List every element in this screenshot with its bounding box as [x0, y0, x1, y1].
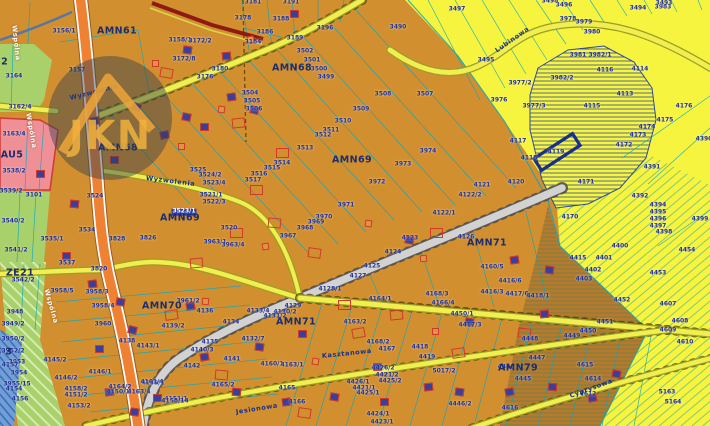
building-icon — [70, 200, 80, 209]
building-outline-icon — [351, 327, 366, 339]
outbuilding-icon — [432, 328, 439, 335]
building-icon — [129, 407, 139, 416]
building-icon — [509, 255, 519, 264]
building-icon — [200, 123, 209, 131]
building-icon — [181, 112, 191, 122]
building-outline-icon — [230, 228, 243, 238]
building-outline-icon — [430, 228, 443, 238]
building-icon — [131, 102, 142, 113]
building-icon — [540, 310, 550, 319]
building-icon — [290, 10, 299, 18]
building-icon — [115, 297, 125, 306]
building-icon — [404, 235, 414, 245]
building-icon — [87, 279, 97, 288]
outbuilding-icon — [311, 357, 319, 365]
outbuilding-icon — [178, 143, 185, 150]
building-icon — [504, 387, 514, 396]
building-outline-icon — [307, 247, 321, 259]
building-icon — [281, 397, 291, 406]
building-icon — [62, 252, 71, 260]
outbuilding-icon — [365, 220, 373, 228]
building-icon — [373, 363, 382, 371]
building-icon — [127, 325, 138, 335]
building-icon — [424, 383, 434, 392]
building-outline-icon — [451, 347, 465, 359]
outbuilding-icon — [202, 298, 210, 306]
cadastral-map-viewport[interactable]: 3156/131573158/13172/23172/8317631803178… — [0, 0, 710, 426]
building-outline-icon — [268, 217, 282, 228]
building-icon — [199, 352, 209, 361]
building-icon — [232, 388, 242, 397]
building-icon — [95, 345, 104, 353]
building-icon — [222, 52, 232, 61]
building-icon — [110, 156, 119, 164]
building-icon — [226, 92, 236, 101]
outbuilding-icon — [218, 106, 226, 114]
outbuilding-icon — [152, 60, 159, 67]
building-outline-icon — [159, 67, 174, 79]
building-icon — [36, 170, 45, 178]
building-outline-icon — [215, 369, 229, 380]
building-icon — [464, 317, 474, 326]
building-outline-icon — [338, 300, 351, 310]
building-icon — [548, 383, 558, 392]
building-outline-icon — [190, 257, 204, 268]
building-icon — [105, 388, 115, 397]
building-outline-icon — [232, 117, 246, 128]
building-outline-icon — [250, 185, 263, 195]
building-outline-icon — [164, 309, 178, 321]
outbuilding-icon — [420, 255, 428, 263]
building-outline-icon — [390, 309, 404, 320]
outbuilding-icon — [246, 35, 254, 43]
building-icon — [89, 116, 99, 125]
building-icon — [153, 394, 162, 402]
building-icon — [329, 392, 339, 401]
buildings-layer — [0, 0, 710, 426]
building-icon — [611, 369, 621, 378]
building-icon — [159, 130, 169, 140]
building-icon — [545, 266, 555, 275]
building-icon — [185, 301, 195, 310]
building-icon — [587, 393, 597, 402]
building-icon — [454, 387, 464, 396]
building-outline-icon — [297, 407, 311, 419]
building-icon — [254, 342, 264, 351]
outbuilding-icon — [262, 243, 270, 251]
building-icon — [249, 105, 260, 115]
building-icon — [380, 398, 389, 406]
building-icon — [298, 330, 307, 338]
building-outline-icon — [276, 148, 289, 158]
building-icon — [182, 45, 192, 54]
building-outline-icon — [518, 327, 532, 338]
